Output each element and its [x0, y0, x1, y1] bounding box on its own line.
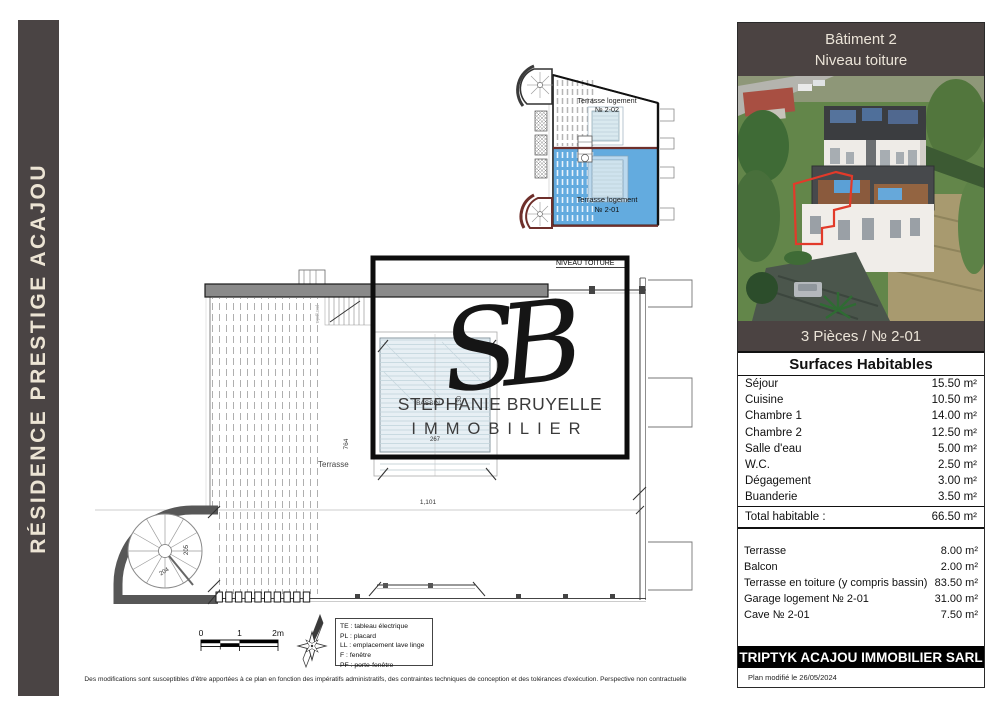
right-facade	[633, 278, 692, 600]
table-row: Garage logement № 2-01 31.00 m²	[738, 591, 984, 607]
legend-item: LL : emplacement lave linge	[340, 641, 428, 651]
room-label: Dégagement	[745, 475, 811, 487]
scale-2m: 2m	[272, 628, 284, 638]
room-label: Salle d'eau	[745, 443, 802, 455]
key-plan-number-2-02: № 2-02	[595, 105, 619, 114]
room-label: Chambre 2	[745, 427, 802, 439]
room-label: Cuisine	[745, 394, 783, 406]
spiral-stair-top-icon	[520, 69, 552, 104]
table-row: Cuisine 10.50 m²	[738, 392, 984, 408]
annex-list: Terrasse 8.00 m² Balcon 2.00 m² Terrasse…	[738, 543, 984, 624]
table-row: Terrasse 8.00 m²	[738, 543, 984, 559]
surfaces-table-title: Surfaces Habitables	[738, 353, 984, 376]
total-row: Total habitable : 66.50 m²	[738, 506, 984, 527]
watermark-field: IMMOBILIER	[411, 420, 588, 438]
dim-764: 764	[343, 438, 350, 449]
table-row: Buanderie 3.50 m²	[738, 489, 984, 505]
legend-item: F : fenêtre	[340, 651, 428, 661]
watermark-name: STEPHANIE BRUYELLE	[398, 394, 602, 414]
unit-label: 3 Pièces / № 2-01	[801, 328, 921, 345]
surfaces-table: Surfaces Habitables Séjour 15.50 m² Cuis…	[738, 351, 984, 529]
compass-rose-icon	[290, 614, 334, 668]
total-value: 66.50 m²	[932, 511, 977, 523]
panel-spacer	[738, 623, 984, 646]
roof-terrace-plan: pergola	[90, 248, 737, 620]
pergola-label: pergola	[314, 305, 320, 324]
table-row: Balcon 2.00 m²	[738, 559, 984, 575]
key-plan: Terrasse logement № 2-02 Terrasse logeme…	[500, 62, 690, 232]
total-label: Total habitable :	[745, 511, 826, 523]
residence-title: RÉSIDENCE PRESTIGE ACAJOU	[27, 163, 51, 554]
table-row: Terrasse en toiture (y compris bassin) 8…	[738, 575, 984, 591]
room-area: 10.50 m²	[932, 394, 977, 406]
legend-item: PF : porte-fenêtre	[340, 661, 428, 671]
room-area: 3.00 m²	[938, 475, 977, 487]
table-row: W.C. 2.50 m²	[738, 457, 984, 473]
room-label: Chambre 1	[745, 410, 802, 422]
level-label: NIVEAU TOITURE	[556, 260, 615, 267]
room-label: Séjour	[745, 378, 778, 390]
info-panel: Bâtiment 2 Niveau toiture	[737, 22, 985, 688]
key-plan-label-2-02: Terrasse logement	[577, 96, 636, 105]
scale-0: 0	[199, 628, 204, 638]
rooms-list: Séjour 15.50 m² Cuisine 10.50 m² Chambre…	[738, 376, 984, 506]
residence-title-bar: RÉSIDENCE PRESTIGE ACAJOU	[18, 20, 59, 696]
building-level: Niveau toiture	[815, 52, 908, 69]
scale-bar: 0 1 2m	[196, 626, 296, 656]
company-name: TRIPTYK ACAJOU IMMOBILIER SARL	[739, 650, 982, 665]
legend-box: TE : tableau électrique PL : placard LL …	[335, 618, 433, 666]
dim-205: 205	[184, 544, 190, 555]
pergola-hatch	[212, 298, 318, 594]
legend-item: PL : placard	[340, 632, 428, 642]
annex-area: 2.00 m²	[941, 561, 978, 573]
ladder-icon	[299, 270, 325, 285]
annex-label: Garage logement № 2-01	[744, 593, 869, 605]
annex-area: 83.50 m²	[935, 577, 978, 589]
room-label: W.C.	[745, 459, 770, 471]
room-area: 5.00 m²	[938, 443, 977, 455]
building-header: Bâtiment 2 Niveau toiture	[738, 23, 984, 76]
table-row: Séjour 15.50 m²	[738, 376, 984, 392]
room-area: 12.50 m²	[932, 427, 977, 439]
table-row: Cave № 2-01 7.50 m²	[738, 607, 984, 623]
room-area: 2.50 m²	[938, 459, 977, 471]
annex-label: Terrasse en toiture (y compris bassin)	[744, 577, 927, 589]
room-area: 14.00 m²	[932, 410, 977, 422]
plan-sheet: RÉSIDENCE PRESTIGE ACAJOU	[0, 0, 1000, 707]
table-row: Chambre 2 12.50 m²	[738, 425, 984, 441]
table-row: Salle d'eau 5.00 m²	[738, 441, 984, 457]
annex-area: 7.50 m²	[941, 609, 978, 621]
key-plan-number-2-01: № 2-01	[595, 205, 620, 214]
spiral-staircase: 204 205	[118, 506, 220, 600]
legend-item: TE : tableau électrique	[340, 622, 428, 632]
unit-label-bar: 3 Pièces / № 2-01	[738, 321, 984, 351]
annex-label: Cave № 2-01	[744, 609, 810, 621]
table-row: Dégagement 3.00 m²	[738, 473, 984, 489]
table-row: Chambre 1 14.00 m²	[738, 408, 984, 424]
annex-label: Balcon	[744, 561, 778, 573]
dim-1101: 1,101	[420, 499, 437, 506]
aerial-photo	[738, 76, 984, 321]
room-label: Buanderie	[745, 491, 797, 503]
annex-area: 8.00 m²	[941, 545, 978, 557]
building-name: Bâtiment 2	[825, 31, 897, 48]
key-plan-label-2-01: Terrasse logement	[577, 195, 638, 204]
scale-1: 1	[237, 628, 242, 638]
plan-modified-date: Plan modifié le 26/05/2024	[738, 668, 984, 687]
company-bar: TRIPTYK ACAJOU IMMOBILIER SARL	[738, 646, 984, 668]
terrasse-label: Terrasse	[318, 460, 349, 469]
disclaimer-text: Des modifications sont susceptibles d'êt…	[58, 676, 713, 683]
annex-label: Terrasse	[744, 545, 786, 557]
room-area: 3.50 m²	[938, 491, 977, 503]
annex-area: 31.00 m²	[935, 593, 978, 605]
room-area: 15.50 m²	[932, 378, 977, 390]
